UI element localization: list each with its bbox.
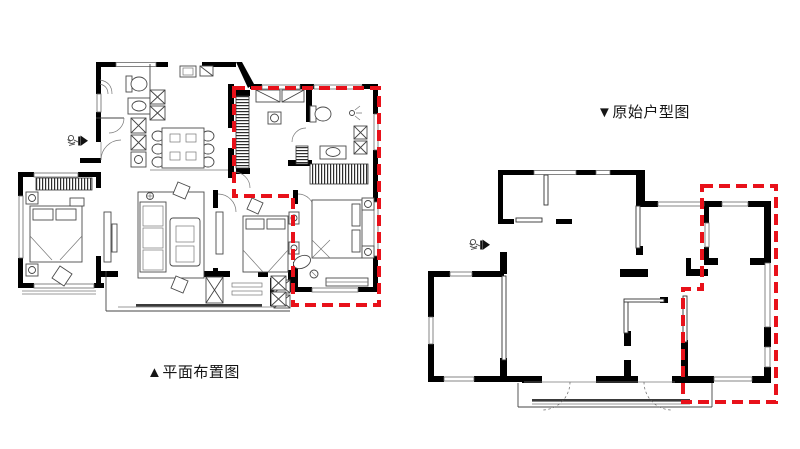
bedroom-rug — [52, 266, 72, 286]
left-bedroom — [26, 178, 92, 286]
bath-shelves — [354, 126, 367, 154]
right-floor-plan — [428, 170, 776, 410]
tv-cabinet — [104, 212, 111, 262]
shower-head-symbol — [350, 106, 363, 120]
right-plan-title: ▼原始户型图 — [597, 101, 690, 122]
middle-bedroom — [216, 198, 299, 308]
dining-table — [152, 128, 214, 168]
shower-symbol — [100, 80, 112, 94]
guest-sink — [128, 98, 150, 114]
right-plan-highlight-region — [683, 186, 776, 402]
master-sink — [320, 146, 346, 159]
left-floor-plan — [18, 62, 379, 311]
entry-figure-icon — [470, 239, 491, 250]
sofa — [140, 202, 166, 272]
left-plan-title: ▲平面布置图 — [147, 361, 240, 382]
guest-toilet — [126, 76, 147, 92]
floor-plan-drawing — [0, 0, 800, 449]
hall-wardrobe — [236, 96, 249, 168]
tv — [112, 224, 117, 252]
right-plan-walls — [428, 170, 771, 383]
floor-plan-sheet: ▲平面布置图 ▼原始户型图 — [0, 0, 800, 449]
entry-figure-icon — [68, 135, 89, 146]
master-toilet — [310, 106, 331, 122]
armchair — [171, 276, 188, 293]
right-bedroom — [291, 198, 374, 286]
